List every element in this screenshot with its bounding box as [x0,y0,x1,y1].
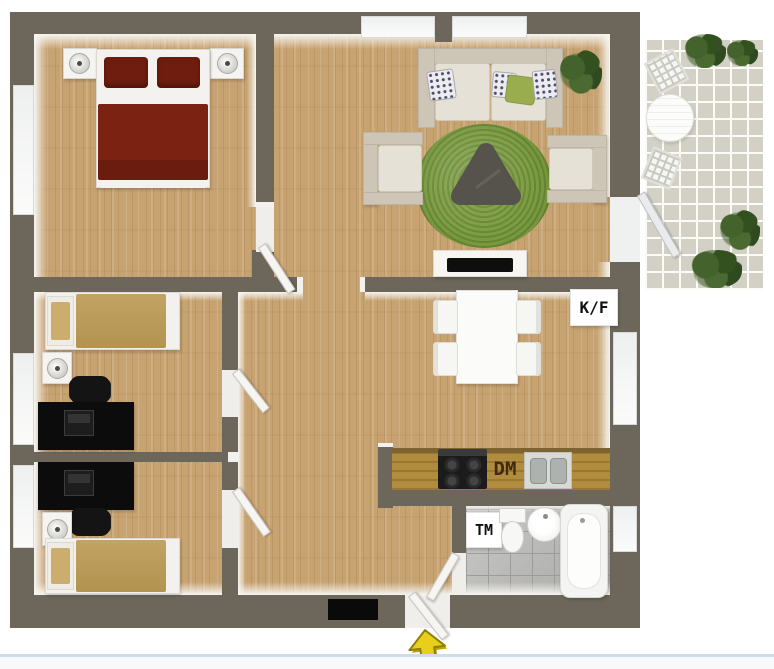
bedside-lamp [47,358,68,379]
page-margin [0,657,774,669]
interior-wall-hallway [222,548,238,595]
window [13,353,34,445]
sofa-back [418,48,563,64]
kitchen-double-sink [524,452,572,489]
bathroom-sink [527,507,562,542]
bedside-lamp [69,53,90,74]
potted-plant [560,50,602,94]
bed-blanket [76,294,166,348]
doormat [328,599,378,620]
interior-wall-bedroom1 [256,34,274,207]
window [361,16,435,38]
wall-end-cap [378,443,393,447]
patterned-pillow [532,69,559,100]
floorplan-canvas: K/F DM TM [0,0,774,669]
patio-plant [726,40,758,66]
window [613,332,637,425]
armchair-armrest [363,192,423,205]
exterior-wall-right [610,12,640,197]
office-chair [70,508,110,536]
bathtub-basin [567,513,601,589]
fridge-freezer-label: K/F [580,298,609,317]
window-mullion [435,12,452,42]
nightstand [42,352,72,384]
bed-footboard [101,180,205,188]
exterior-wall-top [10,12,640,34]
armchair-cushion [378,145,422,192]
fridge-freezer-unit: K/F [570,289,618,326]
dishwasher-unit: DM [486,453,524,485]
bedside-lamp [47,519,68,540]
interior-wall-hallway [222,292,238,370]
dining-table [456,290,518,384]
window [13,85,34,215]
armchair-armrest [547,135,607,148]
dining-chair [433,342,458,376]
dining-chair [516,342,541,376]
triangle-coffee-table [444,138,528,212]
sink-basin [550,458,567,484]
bathtub-drain [580,518,585,523]
stove-cooktop [438,449,487,489]
nightstand [210,48,244,79]
bed-pillow [51,548,70,584]
patterned-pillow [426,68,457,101]
armchair-armrest [547,190,607,203]
patio-plant [690,250,742,288]
patio-round-table [646,94,694,142]
bed-pillow [51,302,70,340]
bed-pillow [104,57,148,88]
dishwasher-label: DM [494,458,517,480]
bed-blanket [76,540,166,592]
interior-wall-bathroom [452,506,466,553]
wall-end-cap [228,452,238,462]
bed-pillow [157,57,200,88]
office-chair [70,376,110,404]
toilet-bowl [501,521,524,553]
bathtub [560,504,608,598]
armchair-armrest [363,132,423,145]
nightstand [63,48,97,79]
dining-chair [516,300,541,334]
washing-machine-unit: TM [466,512,502,548]
window [613,506,637,552]
wall-end-cap [360,277,365,292]
patio-plant [720,210,760,250]
armchair-cushion [549,148,593,190]
sink-basin [530,458,547,484]
laptop [64,410,94,436]
bed-blanket [98,104,208,180]
laptop [64,470,94,496]
doorway-patio [610,197,640,262]
window [452,16,527,38]
wall-end-cap [297,277,303,292]
doorway-kids-room-b [222,490,238,548]
interior-wall-kids-rooms-divider [10,452,238,462]
interior-wall-middle [10,277,303,292]
patio-plant [684,34,726,68]
window [13,465,34,548]
washing-machine-label: TM [475,521,493,539]
tv [447,258,513,272]
bedside-lamp [217,53,238,74]
dining-chair [433,300,458,334]
